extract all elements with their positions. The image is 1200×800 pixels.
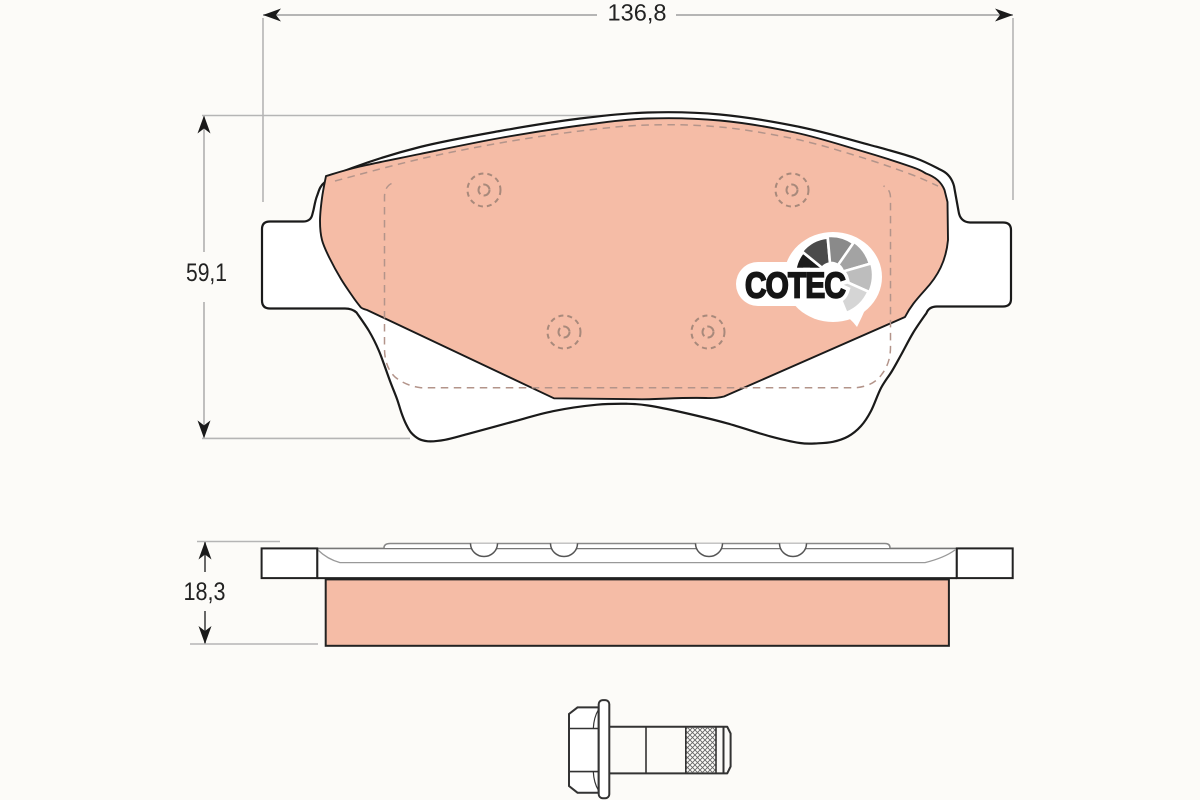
svg-text:COTEC: COTEC	[745, 265, 846, 306]
svg-text:136,8: 136,8	[608, 0, 667, 26]
svg-text:18,3: 18,3	[184, 578, 226, 606]
svg-text:59,1: 59,1	[186, 259, 227, 287]
